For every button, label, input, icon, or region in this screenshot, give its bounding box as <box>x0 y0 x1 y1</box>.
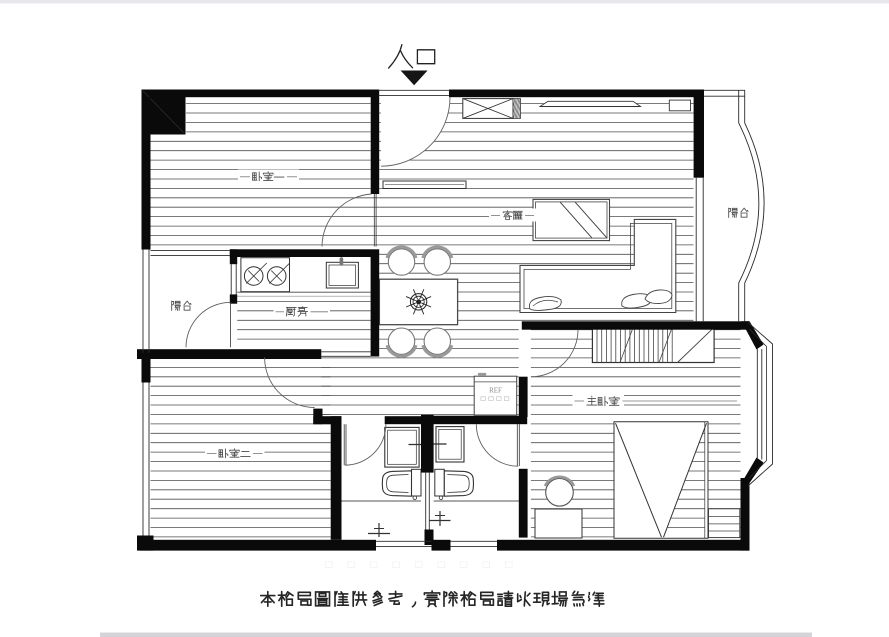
svg-text:REF: REF <box>489 387 502 395</box>
